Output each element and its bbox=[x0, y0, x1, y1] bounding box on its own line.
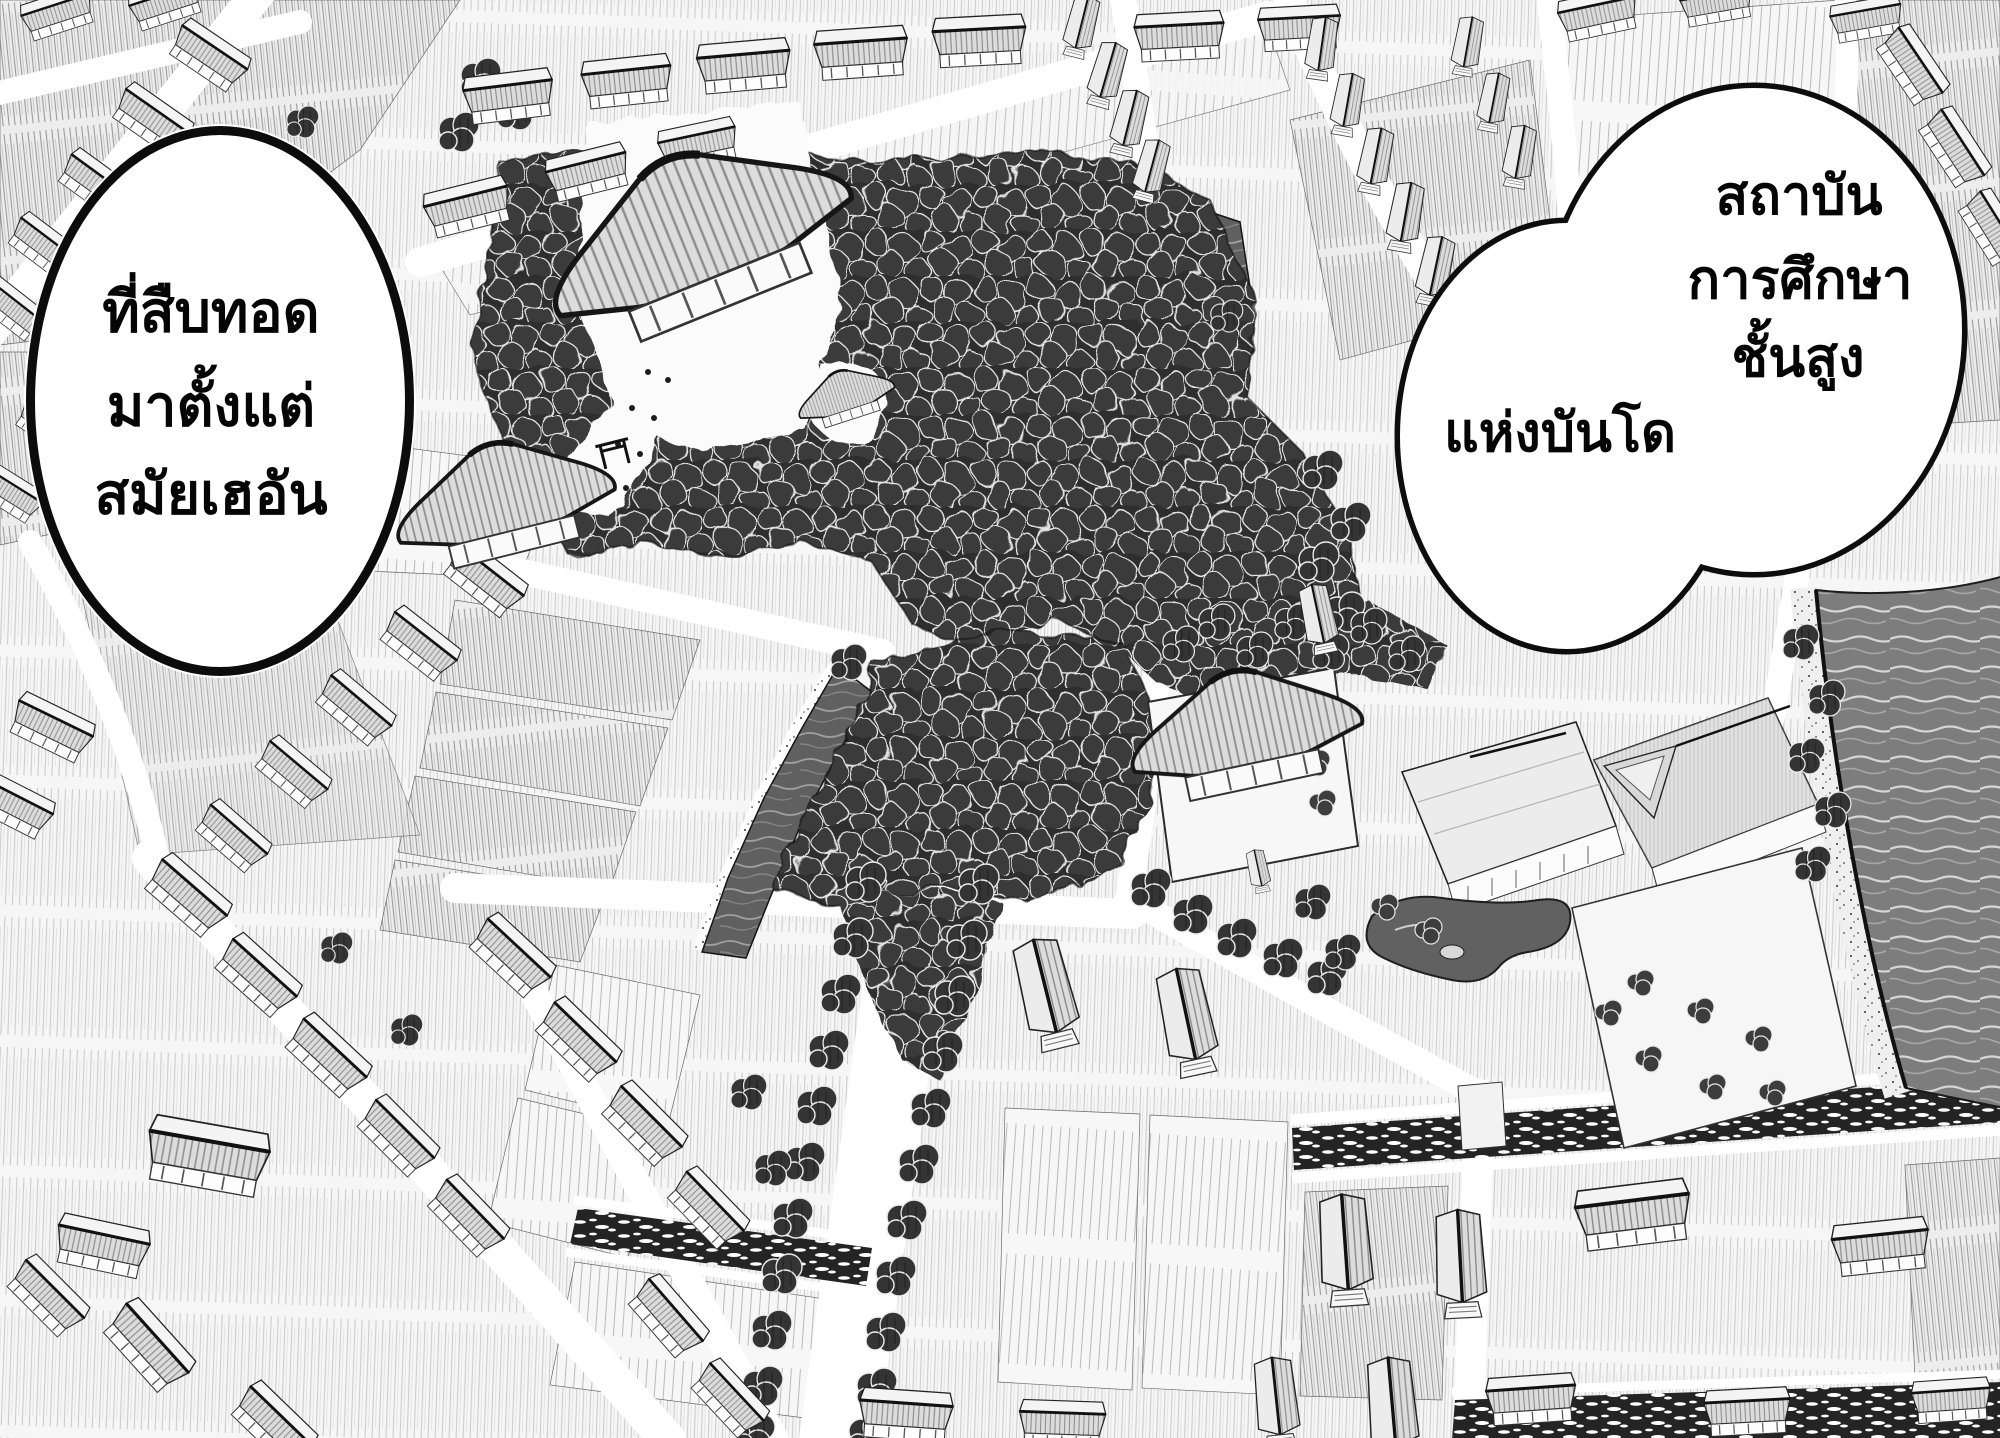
house bbox=[813, 25, 910, 81]
tree bbox=[1237, 632, 1273, 668]
tree bbox=[752, 1310, 792, 1350]
tree bbox=[1163, 626, 1199, 662]
tree bbox=[1789, 738, 1825, 774]
house bbox=[1133, 10, 1225, 62]
tree bbox=[1303, 450, 1343, 490]
speech-line: ที่สืบทอด bbox=[102, 285, 319, 342]
house bbox=[1830, 1216, 1932, 1277]
tree bbox=[935, 976, 975, 1016]
house bbox=[461, 67, 556, 125]
tree bbox=[1351, 608, 1387, 644]
tree bbox=[1211, 300, 1243, 332]
tree bbox=[755, 1150, 791, 1186]
bridge bbox=[1458, 1082, 1506, 1150]
tree bbox=[321, 932, 353, 964]
tree bbox=[1263, 938, 1303, 978]
speech-line: ชั้นสูง bbox=[1732, 331, 1865, 385]
manga-panel: ที่สืบทอด มาตั้งแต่ สมัยเฮอัน สถาบัน การ… bbox=[0, 0, 2000, 1438]
tree bbox=[821, 974, 861, 1014]
tree bbox=[833, 918, 873, 958]
tree bbox=[876, 1256, 916, 1296]
tree bbox=[1173, 894, 1213, 934]
tree bbox=[1795, 846, 1831, 882]
house bbox=[1703, 1387, 1792, 1437]
speech-line: สถาบัน bbox=[1715, 169, 1882, 223]
speech-line: มาตั้งแต่ bbox=[107, 379, 315, 436]
tree bbox=[1217, 918, 1257, 958]
tree bbox=[731, 1074, 767, 1110]
tree bbox=[899, 1144, 939, 1184]
tree bbox=[797, 1086, 837, 1126]
tree bbox=[762, 1254, 802, 1294]
house bbox=[1911, 1377, 1993, 1424]
tree bbox=[911, 1088, 951, 1128]
tree bbox=[887, 1200, 927, 1240]
tree bbox=[1299, 542, 1339, 582]
house bbox=[1018, 1399, 1106, 1438]
tree bbox=[831, 644, 867, 680]
house bbox=[857, 1387, 954, 1438]
tree bbox=[391, 1014, 423, 1046]
tree bbox=[923, 1032, 963, 1072]
tree bbox=[773, 1198, 813, 1238]
tree bbox=[1295, 884, 1331, 920]
right-speech-bubble bbox=[1390, 80, 1980, 665]
tree bbox=[809, 1030, 849, 1070]
tree bbox=[959, 864, 999, 904]
tree bbox=[1809, 680, 1845, 716]
tree bbox=[1815, 792, 1851, 828]
tree bbox=[866, 1312, 906, 1352]
speech-line: การศึกษา bbox=[1688, 253, 1913, 307]
speech-line: สมัยเฮอัน bbox=[94, 467, 327, 524]
tree bbox=[1199, 604, 1235, 640]
house bbox=[1573, 1178, 1695, 1252]
tree bbox=[1331, 502, 1371, 542]
house bbox=[1485, 1372, 1578, 1426]
speech-line: แห่งบันโด bbox=[1444, 406, 1676, 460]
house bbox=[931, 14, 1027, 68]
tree bbox=[1325, 934, 1361, 970]
house bbox=[695, 37, 793, 94]
tree bbox=[947, 920, 987, 960]
house bbox=[580, 53, 674, 110]
tree bbox=[1131, 868, 1171, 908]
tree bbox=[846, 862, 886, 902]
tree bbox=[287, 106, 319, 138]
